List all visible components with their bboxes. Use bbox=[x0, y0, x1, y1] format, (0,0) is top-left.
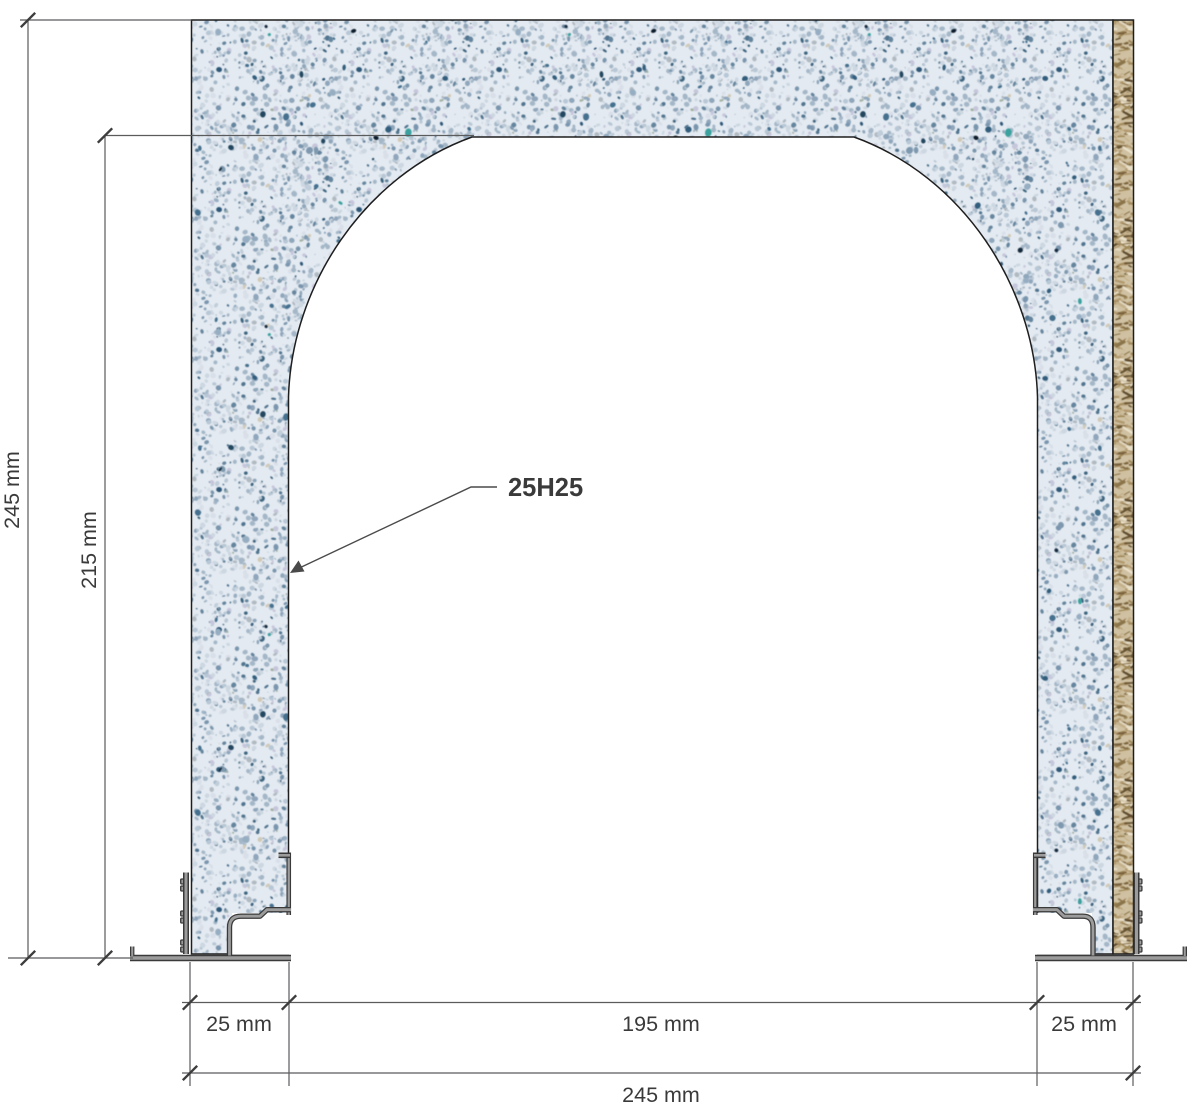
svg-text:245 mm: 245 mm bbox=[622, 1083, 700, 1107]
svg-text:25 mm: 25 mm bbox=[206, 1012, 272, 1036]
svg-text:195 mm: 195 mm bbox=[622, 1012, 700, 1036]
svg-text:245 mm: 245 mm bbox=[0, 451, 24, 529]
svg-text:25H25: 25H25 bbox=[508, 474, 583, 502]
svg-text:215 mm: 215 mm bbox=[77, 511, 101, 589]
svg-text:25 mm: 25 mm bbox=[1051, 1012, 1117, 1036]
